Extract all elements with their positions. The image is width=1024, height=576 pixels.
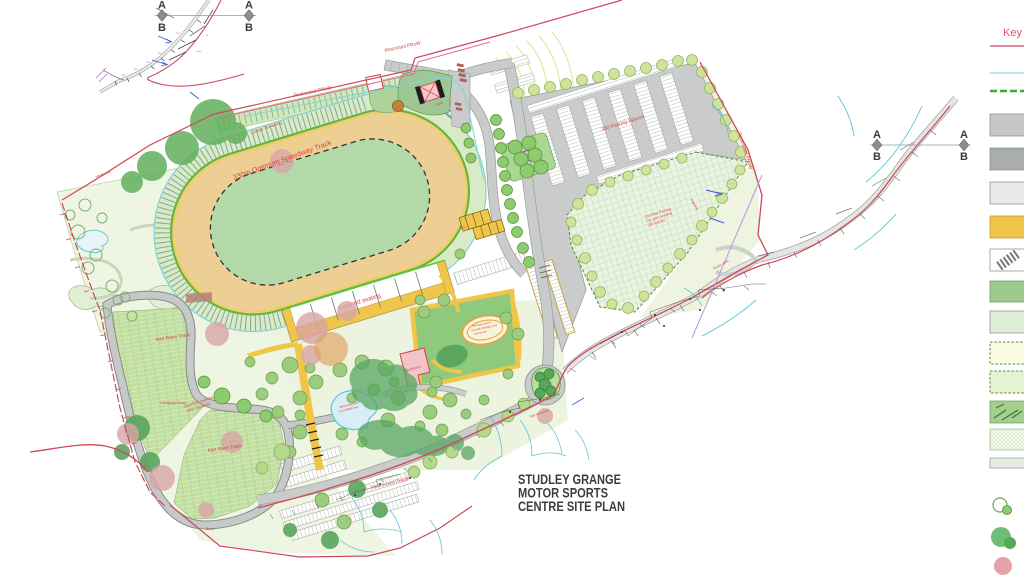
- svg-text:Bund: Bund: [206, 527, 214, 531]
- svg-text:Key: Key: [1003, 27, 1022, 39]
- svg-text:B: B: [873, 151, 881, 163]
- svg-text:B: B: [158, 22, 166, 34]
- svg-text:Track: Track: [196, 50, 202, 53]
- svg-text:B: B: [245, 22, 253, 34]
- svg-text:A: A: [158, 0, 166, 12]
- svg-text:CENTRE SITE PLAN: CENTRE SITE PLAN: [518, 498, 625, 514]
- svg-text:A: A: [873, 129, 881, 141]
- svg-text:A: A: [245, 0, 253, 12]
- svg-text:Landscape bund: Landscape bund: [160, 401, 186, 405]
- svg-text:A: A: [960, 129, 968, 141]
- svg-text:B: B: [960, 151, 968, 163]
